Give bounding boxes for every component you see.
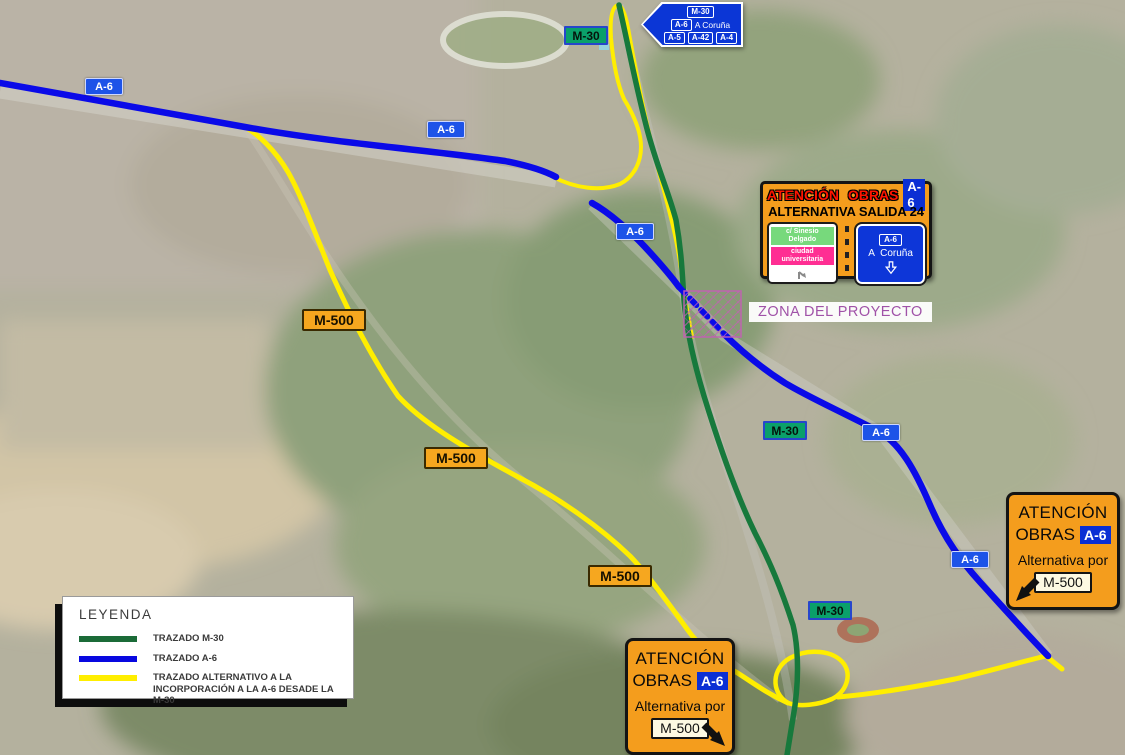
merge-arrow-icon: [796, 267, 809, 280]
alternativa-por-text: Alternativa por: [1013, 552, 1113, 568]
southeast-arrow-icon: [701, 722, 727, 748]
alternativa-salida-text: ALTERNATIVA SALIDA 24: [767, 204, 925, 220]
road-badge-a6: A-6: [616, 223, 654, 240]
attention-obras-text: ATENCIÓN OBRAS: [767, 187, 899, 203]
road-badge-m30: M-30: [763, 421, 807, 440]
road-badge-m500: M-500: [424, 447, 488, 469]
m30-line-swatch: [79, 636, 137, 642]
atencion-obras-sign-right: ATENCIÓN OBRAS A-6 Alternativa por M-500: [1006, 492, 1120, 610]
legend-item-label: TRAZADO A-6: [153, 653, 343, 665]
legend-item-label: TRAZADO M-30: [153, 633, 343, 645]
road-badge-a6: A-6: [862, 424, 900, 441]
legend-title: LEYENDA: [79, 607, 343, 622]
road-badge-m30: M-30: [564, 26, 608, 45]
area-name-badge: ciudad universitaria: [771, 247, 834, 265]
obras-text: OBRAS: [1015, 525, 1075, 545]
direction-sign-destination: A Coruña: [695, 20, 730, 30]
project-zone-marker: [684, 291, 741, 337]
road-badge-a6: A-6: [427, 121, 465, 138]
project-zone-label: ZONA DEL PROYECTO: [749, 302, 932, 322]
street-name-badge: c/ Sinesio Delgado: [771, 227, 834, 245]
coruna-destination: A Coruña: [868, 248, 913, 259]
direction-sign-panel: M-30 A-6 A Coruña A-5 A-42 A-4: [643, 4, 741, 45]
dotted-divider: [845, 226, 849, 274]
direction-sign-a6-badge: A-6: [671, 19, 692, 31]
atencion-text: ATENCIÓN: [632, 649, 728, 669]
main-alert-sign: ATENCIÓN OBRAS A-6 ALTERNATIVA SALIDA 24…: [760, 181, 932, 279]
atencion-obras-sign-bottom: ATENCIÓN OBRAS A-6 Alternativa por M-500: [625, 638, 735, 755]
a6-line-swatch: [79, 656, 137, 662]
road-badge-a6: A-6: [951, 551, 989, 568]
direction-sign-m30-badge: M-30: [687, 6, 713, 18]
southwest-arrow-icon: [1014, 577, 1040, 603]
a6-badge: A-6: [697, 672, 728, 690]
road-badge-m30: M-30: [808, 601, 852, 620]
satellite-map: A-6 A-6 A-6 A-6 A-6 M-30 M-30 M-30 M-500…: [0, 0, 1125, 755]
alternativa-por-text: Alternativa por: [632, 698, 728, 714]
direction-sign-a42-badge: A-42: [688, 32, 713, 44]
highway-mini-sign: A-6 A Coruña: [856, 224, 925, 284]
obras-text: OBRAS: [632, 671, 692, 691]
legend-item-alternative: TRAZADO ALTERNATIVO A LA INCORPORACIÓN A…: [79, 672, 343, 707]
legend-item-a6: TRAZADO A-6: [79, 653, 343, 665]
road-badge-a6: A-6: [85, 78, 123, 95]
legend-item-label: TRAZADO ALTERNATIVO A LA INCORPORACIÓN A…: [153, 672, 343, 707]
direction-sign-a5-badge: A-5: [664, 32, 685, 44]
m500-badge: M-500: [1034, 572, 1092, 593]
direction-sign-a4-badge: A-4: [716, 32, 737, 44]
a6-badge: A-6: [1080, 526, 1111, 544]
atencion-text: ATENCIÓN: [1013, 503, 1113, 523]
down-arrow-icon: [884, 261, 898, 275]
legend: LEYENDA TRAZADO M-30 TRAZADO A-6 TRAZADO…: [62, 596, 354, 699]
legend-item-m30: TRAZADO M-30: [79, 633, 343, 645]
road-badge-m500: M-500: [302, 309, 366, 331]
road-badge-m500: M-500: [588, 565, 652, 587]
alternative-line-swatch: [79, 675, 137, 681]
a6-badge: A-6: [879, 234, 902, 246]
street-mini-sign: c/ Sinesio Delgado ciudad universitaria: [767, 222, 838, 284]
direction-sign: M-30 A-6 A Coruña A-5 A-42 A-4: [641, 2, 743, 47]
